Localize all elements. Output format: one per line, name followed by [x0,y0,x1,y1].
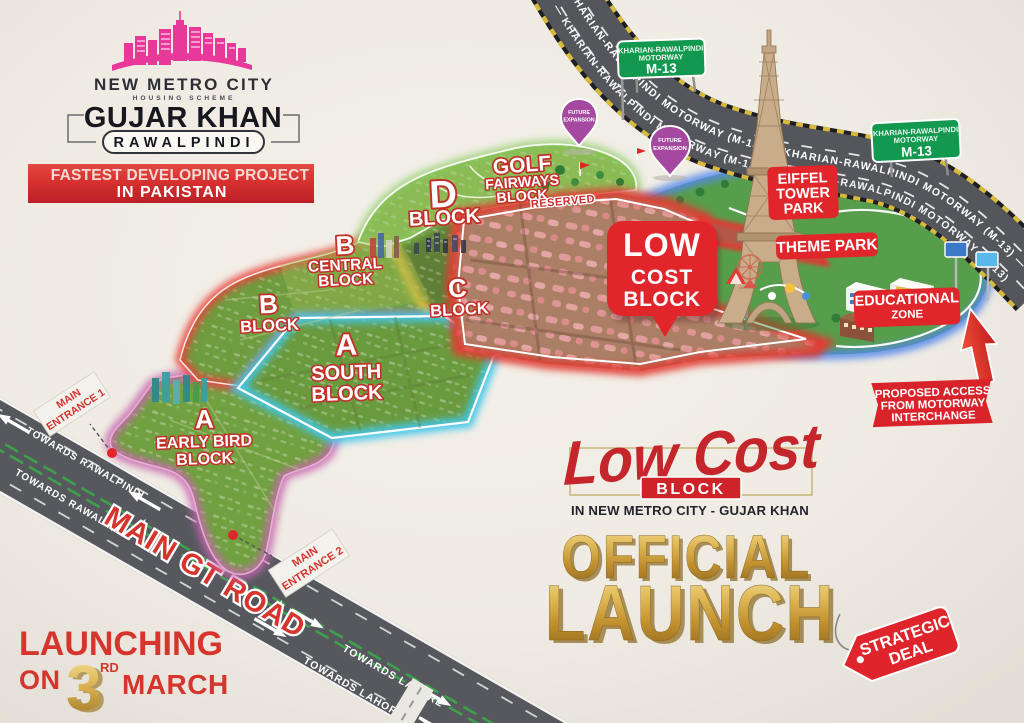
svg-text:RAWALPINDI: RAWALPINDI [113,135,254,151]
svg-text:BLOCK: BLOCK [318,271,375,291]
svg-text:IN PAKISTAN: IN PAKISTAN [117,184,228,201]
svg-text:BLOCK: BLOCK [656,481,725,498]
svg-text:A: A [194,404,214,435]
svg-text:THEME PARK: THEME PARK [776,236,879,257]
svg-text:LAUNCH: LAUNCH [545,570,835,658]
svg-text:FASTEST DEVELOPING PROJECT: FASTEST DEVELOPING PROJECT [51,167,310,184]
svg-text:PARK: PARK [783,200,824,217]
svg-text:IN NEW METRO CITY - GUJAR KHAN: IN NEW METRO CITY - GUJAR KHAN [571,503,809,518]
svg-text:3: 3 [66,652,102,723]
svg-text:COST: COST [631,266,693,289]
svg-text:MARCH: MARCH [122,669,229,700]
svg-text:A: A [335,329,358,363]
svg-text:LOW: LOW [623,227,701,263]
svg-text:BLOCK: BLOCK [408,205,481,231]
svg-text:RD: RD [100,660,119,675]
svg-text:NEW METRO CITY: NEW METRO CITY [94,75,274,94]
svg-text:EXPANSION: EXPANSION [653,146,687,152]
svg-text:EARLY BIRD: EARLY BIRD [156,432,253,452]
svg-text:ON: ON [19,665,61,695]
svg-text:BLOCK: BLOCK [176,450,234,469]
svg-text:M-13: M-13 [646,60,678,76]
svg-text:M-13: M-13 [901,143,933,160]
svg-text:ZONE: ZONE [891,308,924,321]
svg-text:BLOCK: BLOCK [623,288,700,311]
svg-text:BLOCK: BLOCK [311,382,383,406]
svg-text:EXPANSION: EXPANSION [563,118,594,124]
svg-text:BLOCK: BLOCK [240,315,300,336]
svg-text:GUJAR KHAN: GUJAR KHAN [84,102,282,134]
svg-text:HOUSING SCHEME: HOUSING SCHEME [133,95,236,102]
svg-text:BLOCK: BLOCK [430,299,490,320]
svg-text:LAUNCHING: LAUNCHING [19,625,223,663]
svg-text:C: C [447,273,468,304]
svg-text:B: B [258,289,278,320]
svg-text:FUTURE: FUTURE [658,138,682,144]
svg-text:FUTURE: FUTURE [568,110,590,116]
